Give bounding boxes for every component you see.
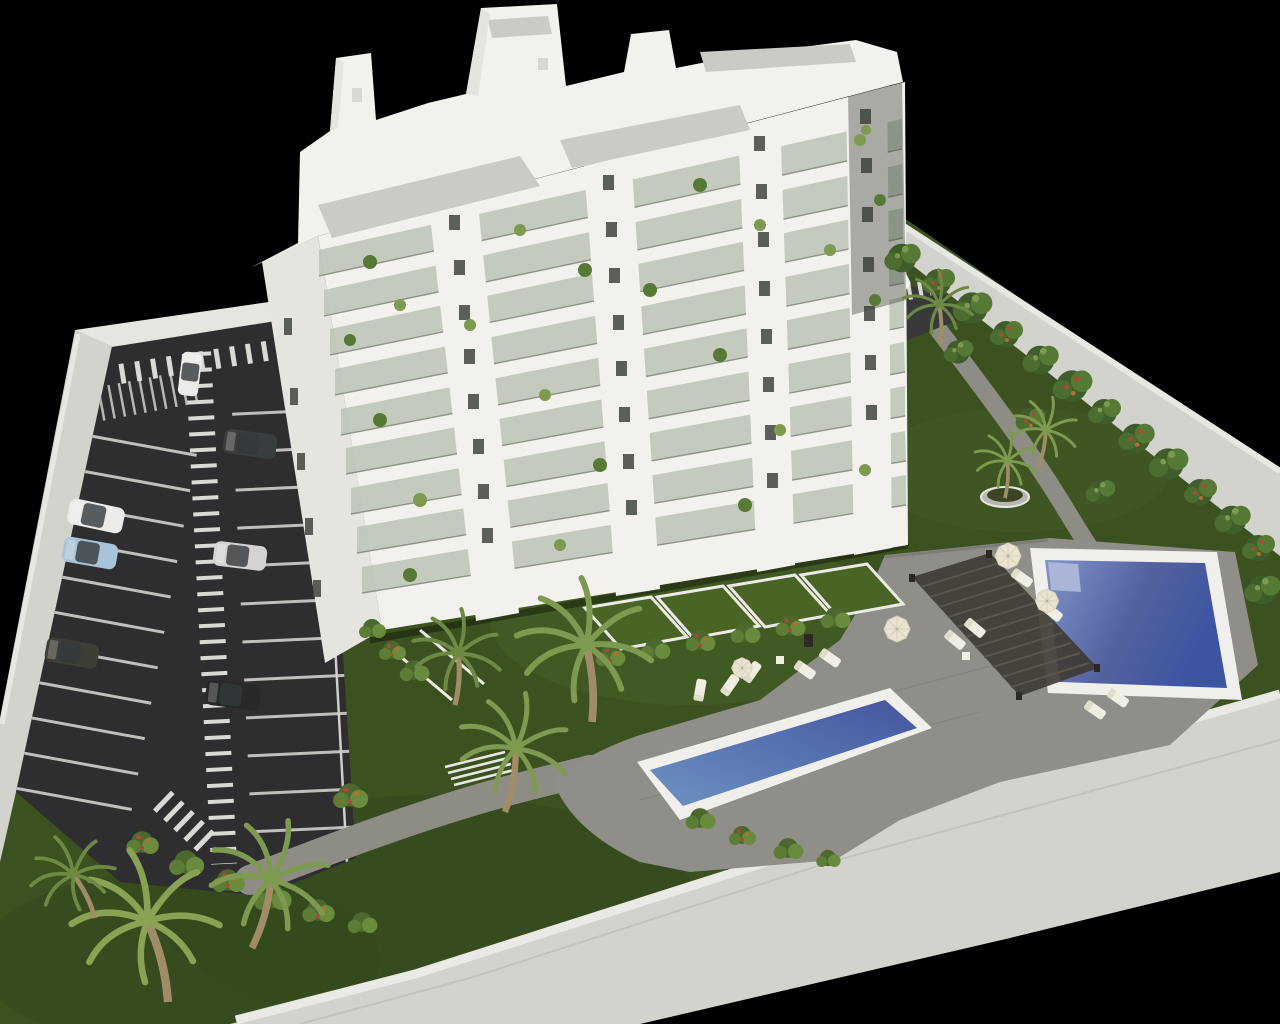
rooftop-unit [538, 58, 548, 70]
main-pool-steps [1048, 562, 1081, 592]
apartment-building [250, 4, 908, 663]
architectural-render [0, 0, 1280, 1024]
side-table [962, 652, 970, 660]
deck-cabinet [804, 634, 813, 647]
rooftop-unit [352, 88, 362, 102]
side-table [776, 656, 784, 664]
render-canvas [0, 0, 1280, 1024]
